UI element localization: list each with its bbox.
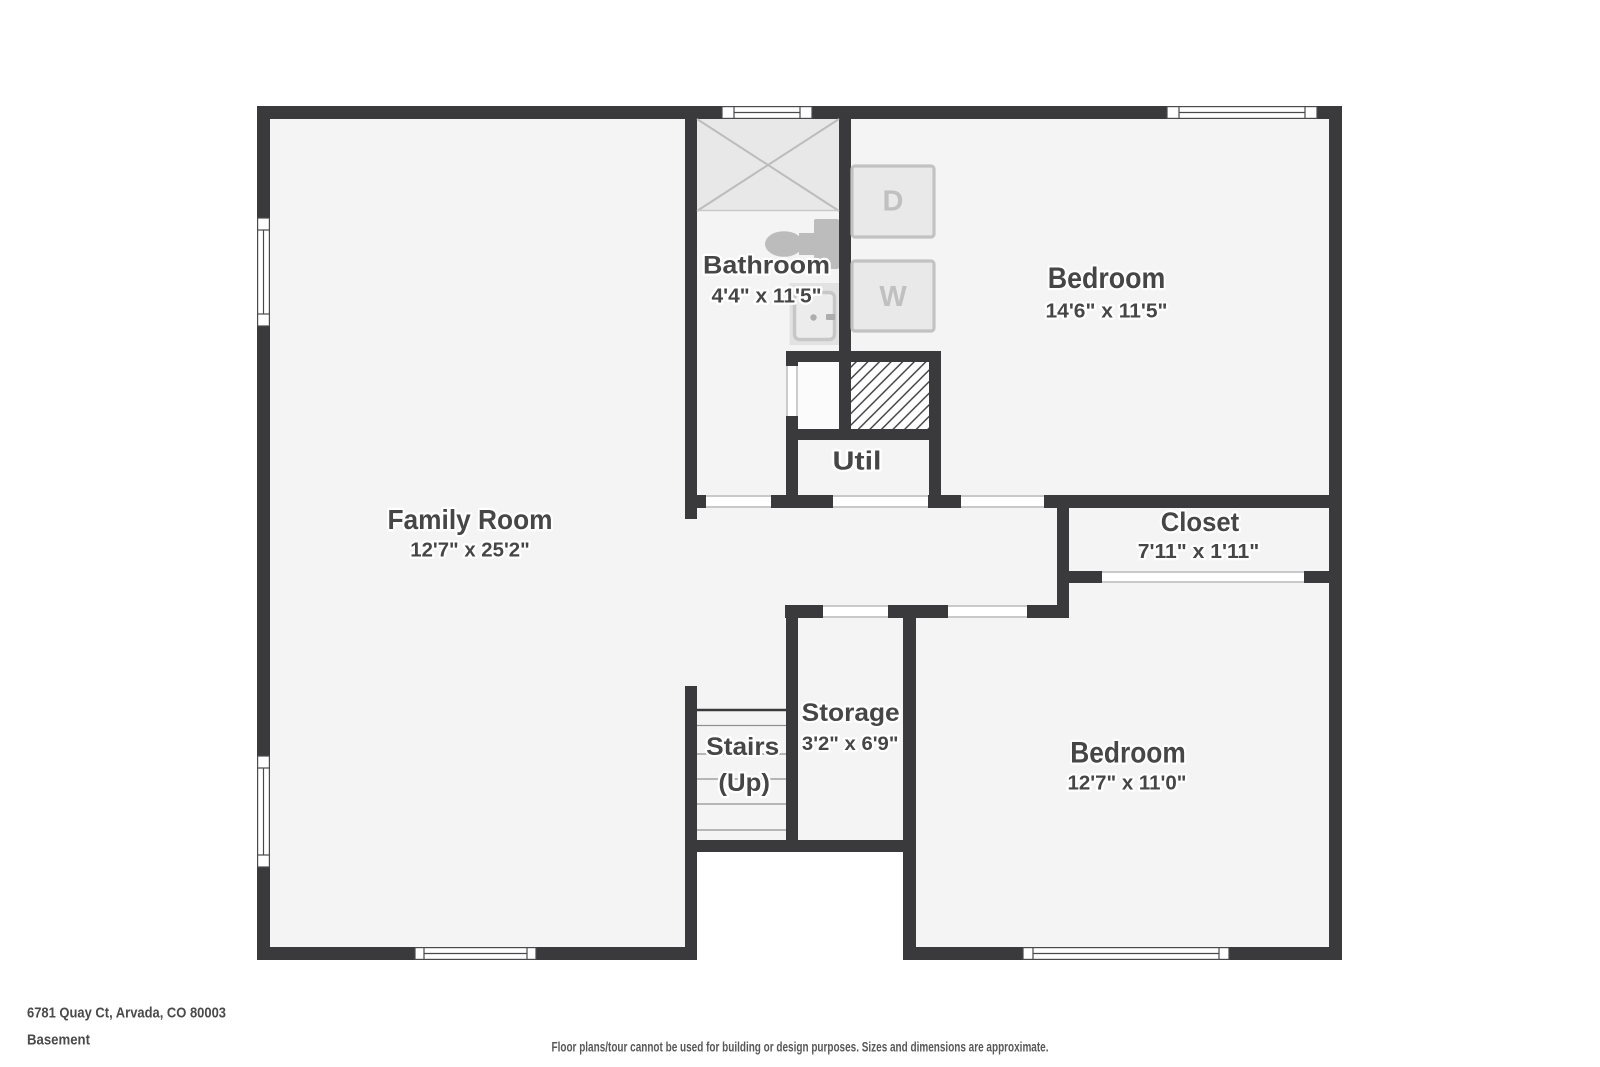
svg-text:Storage: Storage — [802, 699, 900, 727]
svg-text:4'4" x 11'5": 4'4" x 11'5" — [712, 286, 822, 308]
svg-text:Bedroom: Bedroom — [1048, 262, 1166, 295]
svg-text:3'2" x 6'9": 3'2" x 6'9" — [802, 733, 899, 755]
svg-text:12'7" x 25'2": 12'7" x 25'2" — [410, 540, 530, 562]
svg-text:Bedroom: Bedroom — [1070, 737, 1186, 770]
svg-text:(Up): (Up) — [718, 769, 770, 797]
svg-text:14'6" x 11'5": 14'6" x 11'5" — [1046, 301, 1168, 323]
svg-text:W: W — [879, 281, 907, 313]
svg-text:Stairs: Stairs — [706, 733, 779, 761]
svg-text:Basement: Basement — [27, 1032, 90, 1049]
svg-text:12'7" x 11'0": 12'7" x 11'0" — [1068, 773, 1187, 795]
svg-text:D: D — [883, 186, 904, 218]
svg-text:7'11" x 1'11": 7'11" x 1'11" — [1138, 541, 1260, 563]
svg-text:6781 Quay Ct, Arvada, CO 80003: 6781 Quay Ct, Arvada, CO 80003 — [27, 1005, 226, 1022]
svg-text:Floor plans/tour cannot be use: Floor plans/tour cannot be used for buil… — [552, 1039, 1049, 1055]
svg-text:Util: Util — [833, 446, 882, 476]
svg-text:Family Room: Family Room — [388, 504, 553, 535]
svg-text:Bathroom: Bathroom — [703, 252, 830, 280]
svg-text:Closet: Closet — [1161, 507, 1240, 537]
